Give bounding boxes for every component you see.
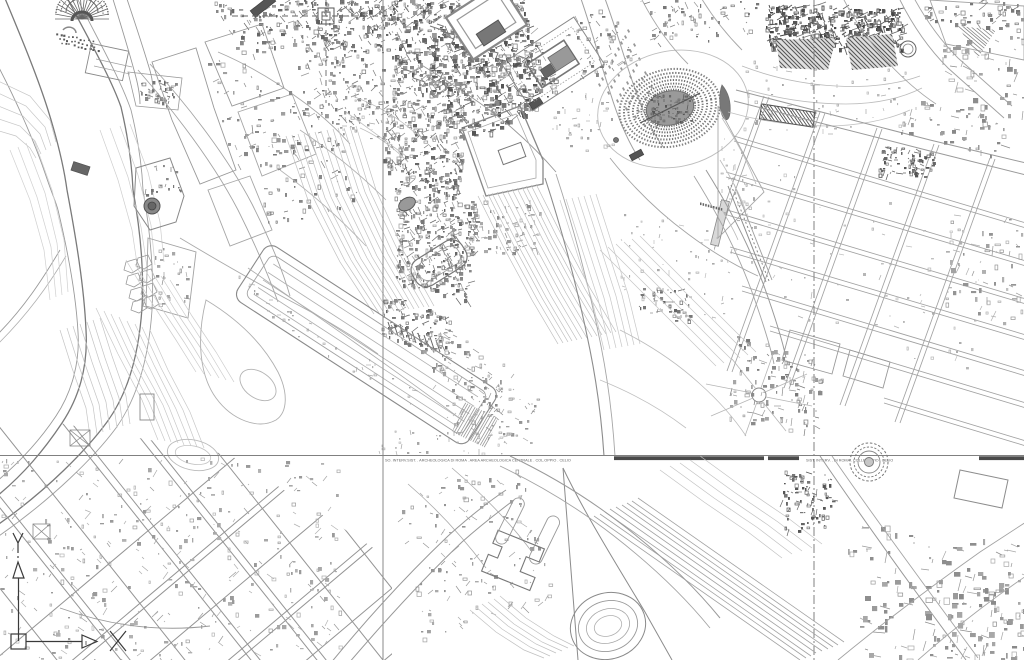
svg-text:SO. INTERV.SIST. . ARCHEOLOGIC: SO. INTERV.SIST. . ARCHEOLOGICA DI ROMA … xyxy=(385,459,571,463)
